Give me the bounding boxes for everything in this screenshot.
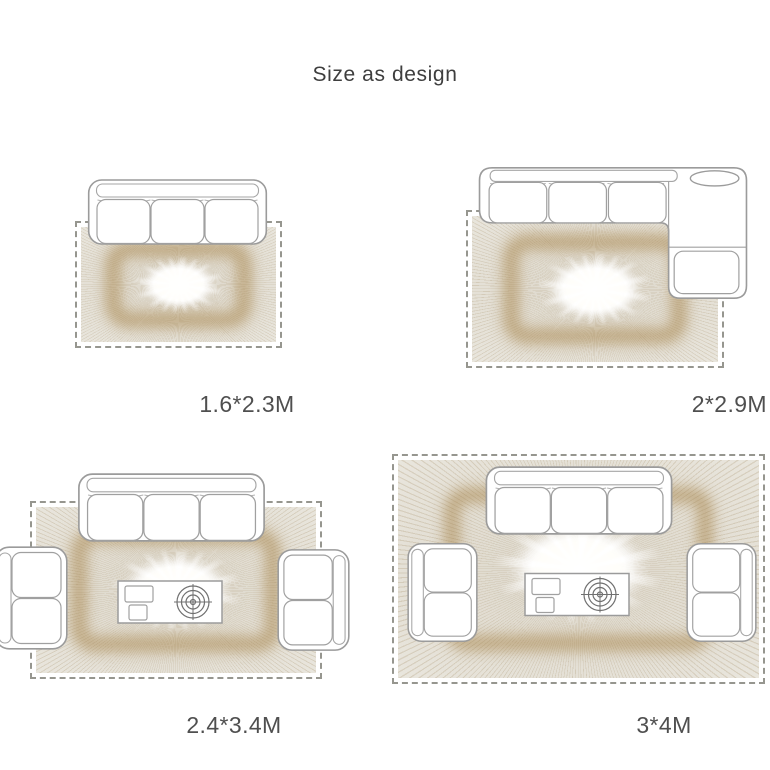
coffee-table-icon [524, 572, 630, 617]
three-seat-sofa-icon [483, 464, 675, 537]
coffee-table-icon [117, 580, 223, 624]
three-seat-sofa-icon [75, 471, 268, 544]
size-guide-image: Size as design 1.6*2.3M 2*2.9M [0, 0, 770, 770]
size-label: 2.4*3.4M [139, 712, 329, 739]
size-label: 3*4M [589, 712, 739, 739]
loveseat-right-icon [277, 547, 350, 653]
sectional-sofa-icon [478, 166, 748, 302]
size-label: 2*2.9M [617, 391, 767, 418]
three-seat-sofa-icon [87, 177, 268, 247]
loveseat-left-icon [0, 546, 69, 650]
size-label: 1.6*2.3M [157, 391, 337, 418]
rug-center-burst [128, 252, 229, 316]
page-title: Size as design [0, 63, 770, 87]
loveseat-right-icon [686, 542, 757, 643]
loveseat-left-icon [407, 542, 478, 643]
